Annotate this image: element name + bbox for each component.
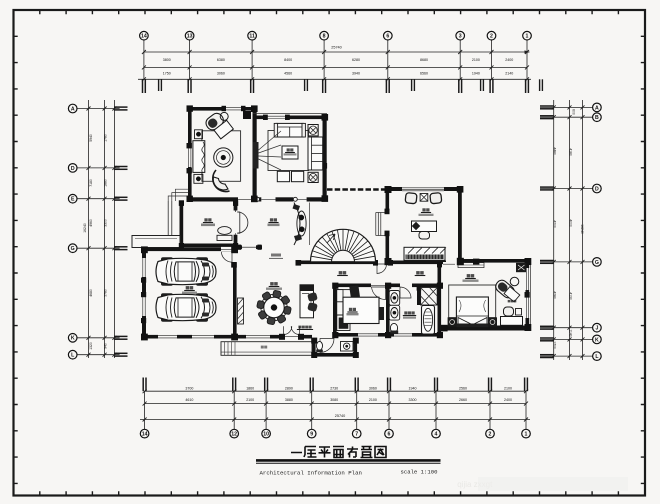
svg-text:2560: 2560 [459, 386, 467, 390]
svg-text:D: D [71, 166, 75, 172]
svg-text:B: B [595, 115, 599, 121]
svg-text:3300: 3300 [104, 219, 108, 227]
svg-text:K: K [595, 337, 599, 343]
svg-text:16240: 16240 [580, 224, 584, 234]
svg-text:3060: 3060 [217, 72, 225, 76]
svg-text:4000: 4000 [569, 219, 573, 227]
svg-text:2100: 2100 [369, 398, 377, 402]
svg-text:2100: 2100 [472, 58, 480, 62]
svg-text:1780: 1780 [104, 134, 108, 142]
svg-text:scale 1:100: scale 1:100 [401, 468, 439, 475]
svg-text:A: A [71, 106, 75, 112]
svg-text:1860: 1860 [246, 386, 254, 390]
svg-text:2140: 2140 [505, 72, 513, 76]
svg-text:6380: 6380 [217, 58, 225, 62]
svg-text:4680: 4680 [89, 289, 93, 297]
svg-text:1: 1 [525, 432, 528, 438]
svg-text:D: D [595, 186, 599, 192]
svg-text:6: 6 [388, 432, 391, 438]
svg-text:E: E [71, 197, 75, 203]
svg-text:600: 600 [571, 109, 575, 115]
svg-text:1140: 1140 [569, 329, 573, 336]
svg-text:3300: 3300 [409, 398, 417, 402]
svg-text:7180: 7180 [89, 179, 93, 187]
svg-text:2100: 2100 [246, 398, 254, 402]
svg-text:4610: 4610 [185, 398, 193, 402]
svg-text:16240: 16240 [83, 223, 87, 233]
svg-text:1750: 1750 [163, 72, 171, 76]
svg-text:3940: 3940 [352, 72, 360, 76]
svg-text:1940: 1940 [472, 72, 480, 76]
svg-text:8680: 8680 [420, 58, 428, 62]
svg-text:25740: 25740 [335, 414, 346, 418]
svg-text:J: J [595, 326, 598, 332]
svg-text:4180: 4180 [569, 148, 573, 156]
svg-text:6: 6 [386, 34, 389, 40]
svg-text:3800: 3800 [163, 58, 171, 62]
svg-text:1700: 1700 [553, 341, 557, 349]
svg-text:2730: 2730 [330, 386, 338, 390]
svg-text:2890: 2890 [285, 386, 293, 390]
svg-text:940: 940 [104, 343, 108, 349]
svg-text:6280: 6280 [352, 58, 360, 62]
svg-text:2400: 2400 [505, 58, 513, 62]
svg-text:7: 7 [355, 432, 358, 438]
svg-text:1: 1 [526, 34, 529, 40]
svg-text:25740: 25740 [331, 46, 342, 50]
svg-text:G: G [71, 246, 75, 252]
svg-text:4960: 4960 [89, 219, 93, 227]
svg-text:3880: 3880 [285, 398, 293, 402]
svg-text:5940: 5940 [89, 134, 93, 142]
svg-text:4200: 4200 [553, 220, 557, 228]
svg-text:3: 3 [459, 34, 462, 40]
svg-text:8400: 8400 [284, 58, 292, 62]
svg-text:2660: 2660 [459, 398, 467, 402]
svg-text:2: 2 [489, 432, 492, 438]
svg-text:3700: 3700 [185, 386, 193, 390]
svg-text:9: 9 [310, 432, 313, 438]
svg-text:6560: 6560 [420, 72, 428, 76]
svg-text:1320: 1320 [89, 342, 93, 350]
svg-text:1880: 1880 [104, 179, 108, 187]
svg-text:10: 10 [263, 432, 269, 438]
svg-text:2100: 2100 [504, 386, 512, 390]
svg-text:3080: 3080 [330, 398, 338, 402]
svg-text:2400: 2400 [504, 398, 512, 402]
svg-text:K: K [71, 336, 75, 342]
svg-text:14: 14 [142, 432, 148, 438]
svg-text:4480: 4480 [553, 147, 557, 155]
svg-text:11: 11 [249, 34, 255, 40]
svg-text:5780: 5780 [104, 289, 108, 297]
svg-text:2: 2 [490, 34, 493, 40]
svg-text:13: 13 [187, 34, 193, 40]
svg-text:1940: 1940 [409, 386, 417, 390]
svg-text:A: A [595, 105, 599, 111]
svg-text:4130: 4130 [569, 292, 573, 300]
svg-text:G: G [595, 260, 599, 266]
svg-text:4: 4 [435, 432, 438, 438]
svg-text:12: 12 [231, 432, 237, 438]
svg-text:14: 14 [141, 34, 147, 40]
svg-text:3060: 3060 [369, 386, 377, 390]
svg-text:Architectural Information Plan: Architectural Information Plan [260, 469, 362, 476]
svg-text:8: 8 [323, 34, 326, 40]
svg-text:4280: 4280 [553, 291, 557, 299]
svg-text:4560: 4560 [284, 72, 292, 76]
